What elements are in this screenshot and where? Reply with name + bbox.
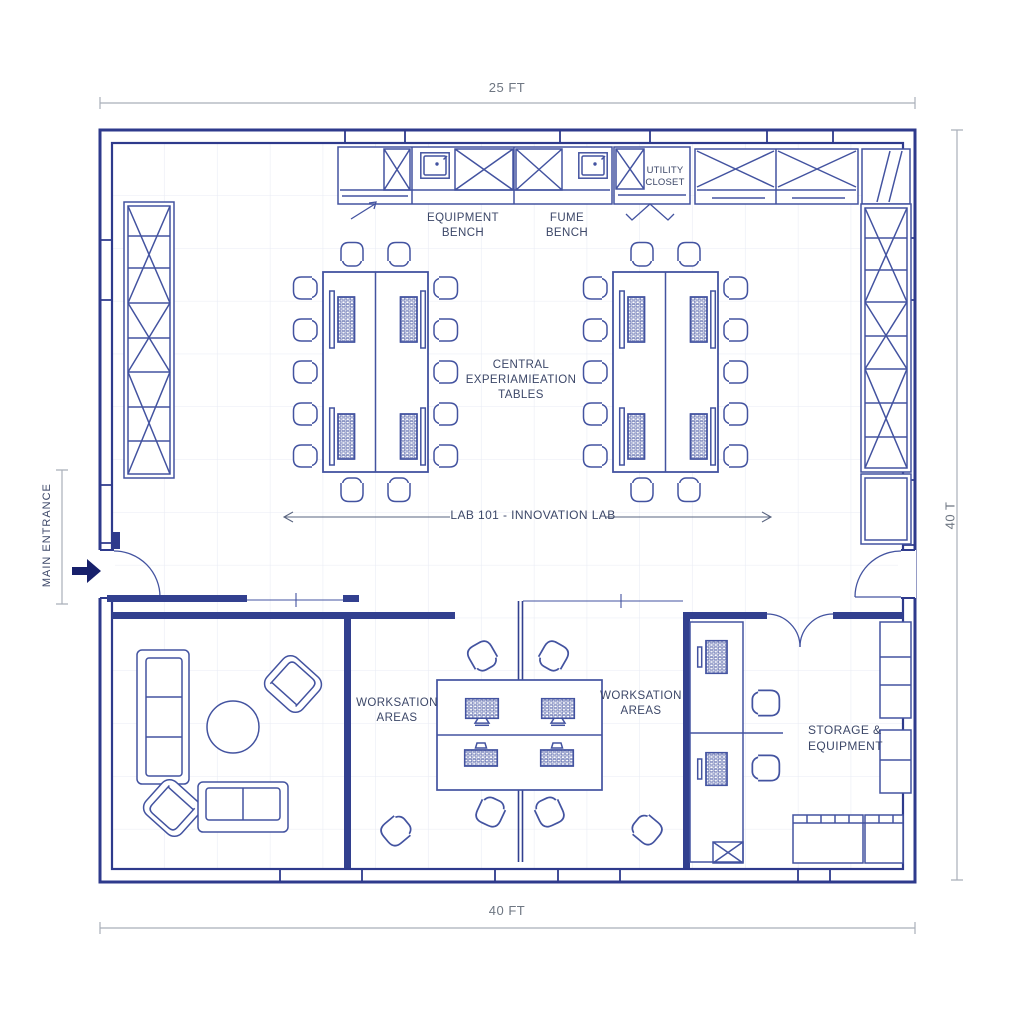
- corner-cabinet: [862, 149, 910, 204]
- equipment-bench-label: EQUIPMENT BENCH: [413, 211, 513, 241]
- top-right-cabinets: [695, 149, 858, 204]
- dimension-bottom-label: 40 FT: [457, 903, 557, 920]
- dimension-right-label: 40 T: [943, 450, 960, 580]
- lab-name-label: LAB 101 - INNOVATION LAB: [448, 508, 618, 524]
- workstation-desks: [437, 680, 602, 790]
- door-jamb: [112, 532, 120, 549]
- lounge-sofa: [137, 650, 189, 784]
- fume-bench-label: FUME BENCH: [517, 211, 617, 241]
- sink-icon: [421, 153, 449, 178]
- main-entrance-label: MAIN ENTRANCE: [40, 460, 54, 610]
- dimension-top-label: 25 FT: [457, 80, 557, 97]
- workstation-areas-left-label: WORKSATION AREAS: [348, 696, 446, 726]
- storage-equipment-label: STORAGE & EQUIPMENT: [808, 723, 903, 754]
- utility-closet-label: UTILITY CLOSET: [641, 165, 689, 190]
- central-tables-label: CENTRAL EXPERIAMIEATION TABLES: [452, 358, 590, 403]
- entrance-arrow-icon: [72, 559, 101, 583]
- left-shelving: [124, 202, 174, 478]
- equipment-bench-counter: [338, 147, 612, 204]
- sink-icon: [579, 153, 607, 178]
- right-shelving: [861, 204, 911, 544]
- workstation-areas-right-label: WORKSATION AREAS: [598, 689, 684, 719]
- storage-cabinets: [793, 815, 903, 863]
- floor-plan: 25 FT 40 FT 40 T MAIN ENTRANCE EQUIPMENT…: [0, 0, 1024, 1024]
- lounge-round-table: [207, 701, 259, 753]
- storage-shelves: [880, 622, 911, 793]
- lounge-loveseat: [198, 782, 288, 832]
